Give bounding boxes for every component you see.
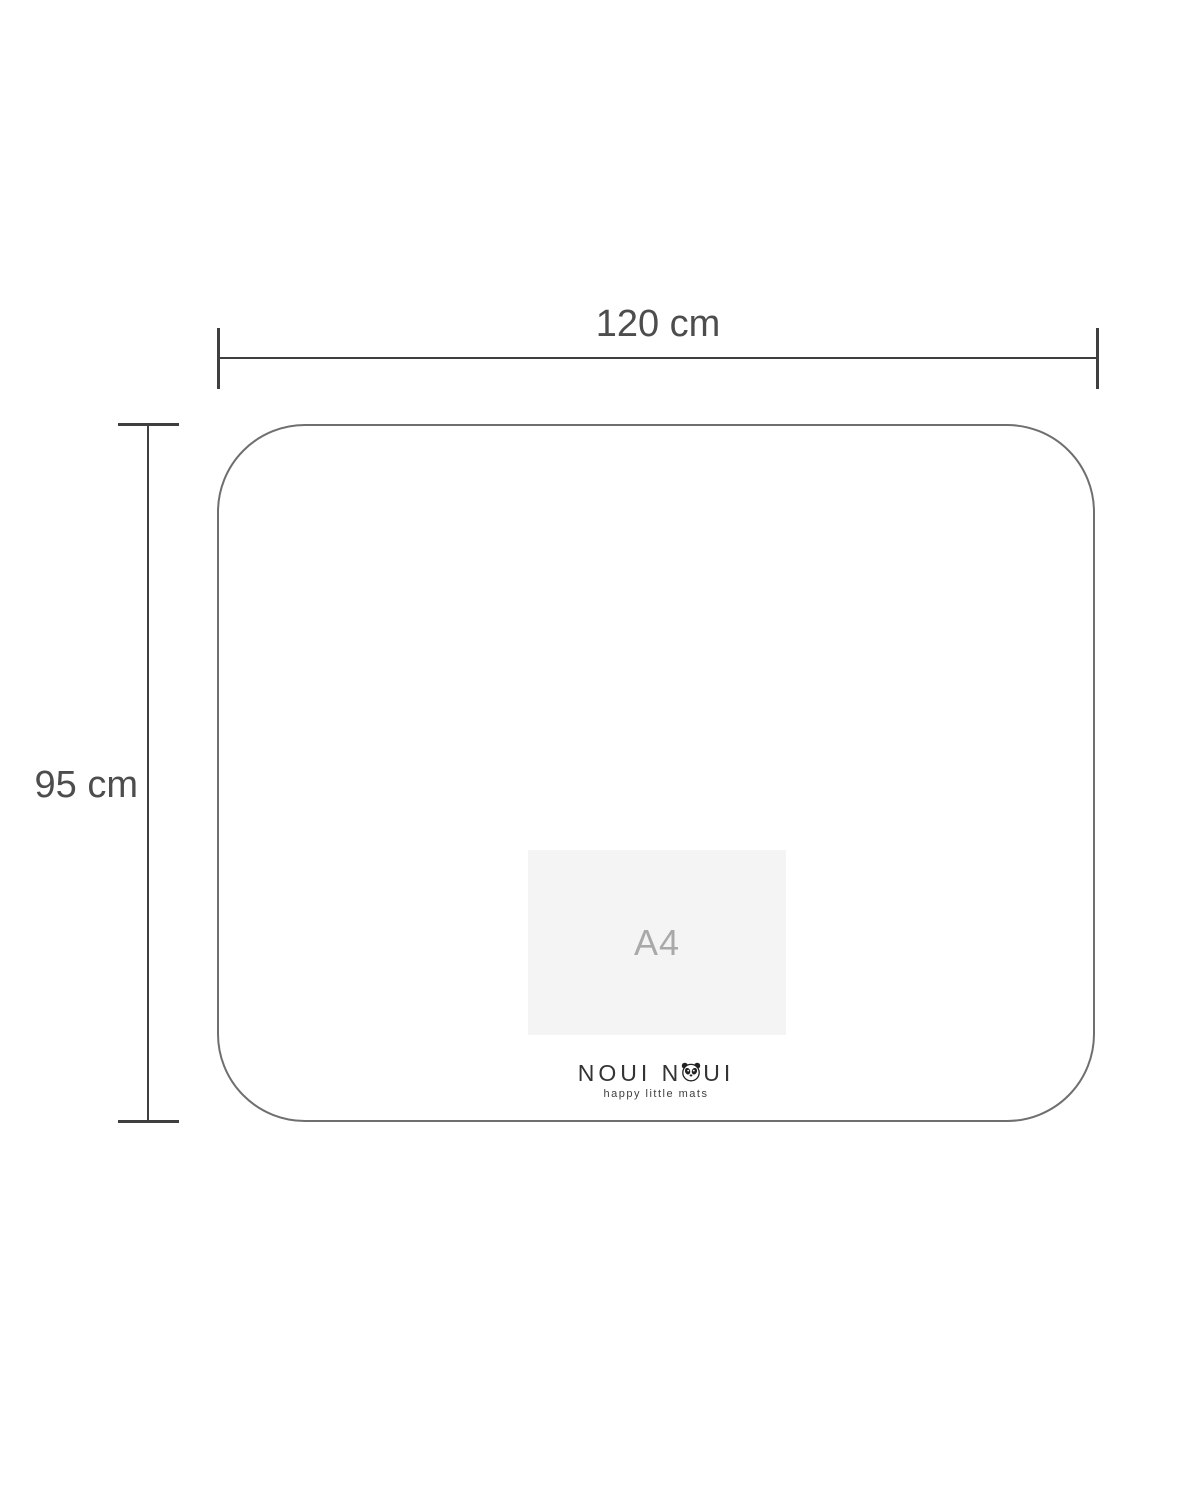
height-dimension-label: 95 cm [0, 763, 138, 807]
brand-tagline: happy little mats [217, 1088, 1095, 1100]
width-dimension-tick-left [217, 328, 220, 389]
panda-face-icon [681, 1062, 701, 1082]
brand-name-right: UI [703, 1060, 734, 1086]
a4-size-reference: A4 [528, 850, 786, 1035]
a4-label: A4 [634, 922, 680, 964]
width-dimension-line [218, 357, 1098, 359]
height-dimension-line [147, 424, 149, 1122]
brand-name-left: NOUI N [578, 1060, 683, 1086]
width-dimension-label: 120 cm [218, 302, 1098, 346]
brand-name: NOUI N UI [217, 1060, 1095, 1086]
dimension-diagram: 120 cm 95 cm A4 NOUI N UI happy litt [0, 0, 1200, 1500]
brand-logo: NOUI N UI happy little mats [217, 1060, 1095, 1100]
height-dimension-tick-top [118, 423, 179, 426]
height-dimension-tick-bottom [118, 1120, 179, 1123]
width-dimension-tick-right [1096, 328, 1099, 389]
